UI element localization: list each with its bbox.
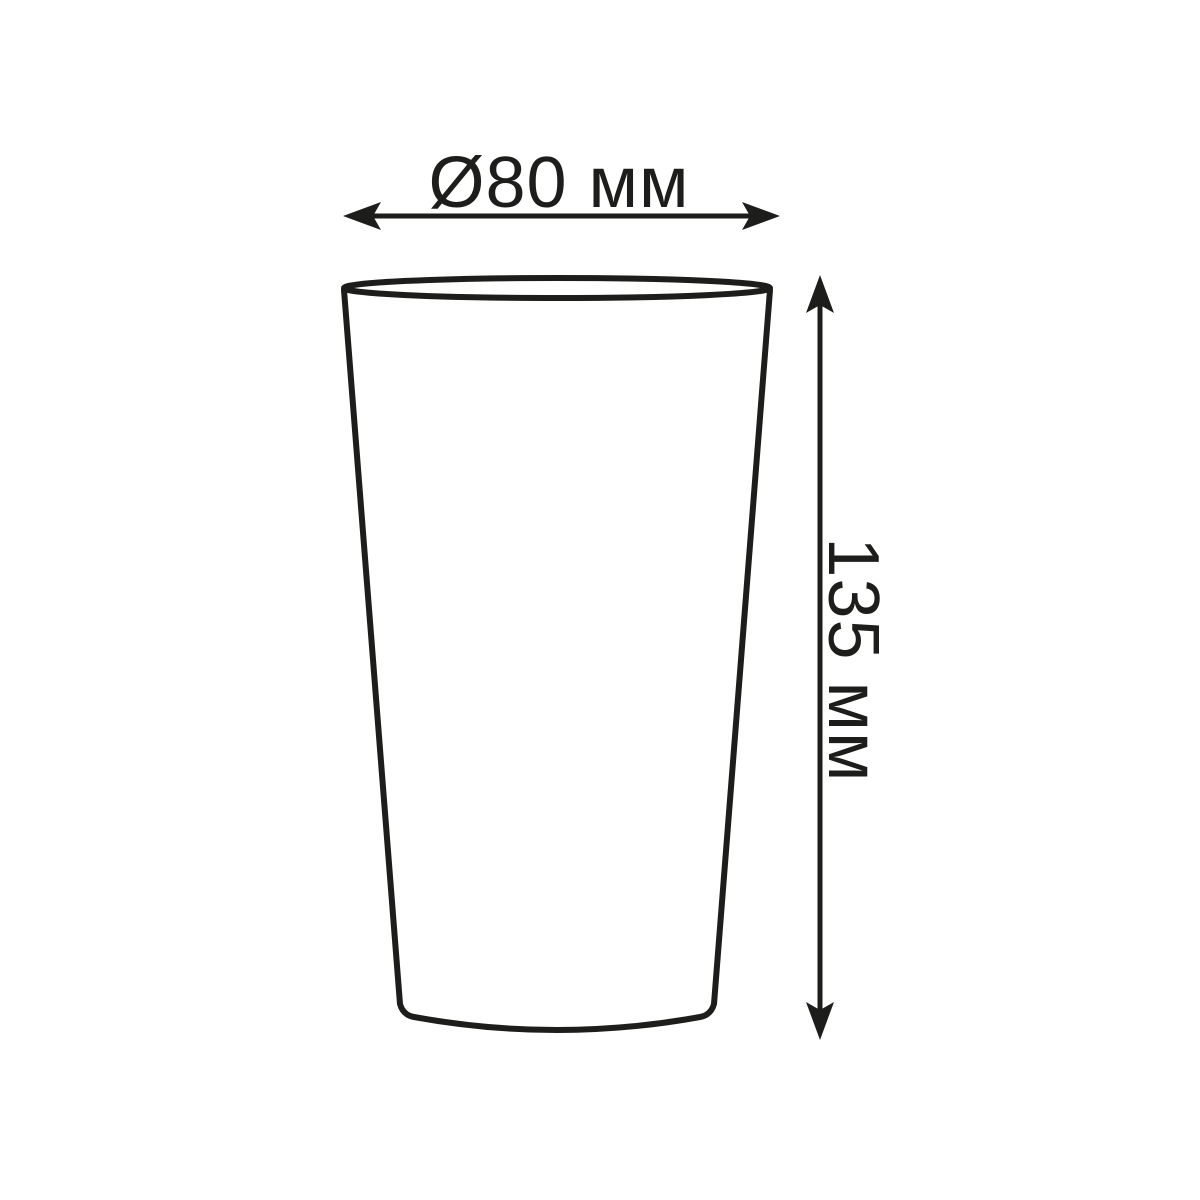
height-label: 135 мм	[813, 537, 893, 782]
cup-body-outline	[344, 290, 770, 1030]
diameter-label: Ø80 мм	[428, 143, 689, 223]
drawing-canvas: Ø80 мм 135 мм	[0, 0, 1200, 1200]
cup-rim	[344, 278, 770, 298]
cup-technical-drawing: Ø80 мм 135 мм	[0, 0, 1200, 1200]
